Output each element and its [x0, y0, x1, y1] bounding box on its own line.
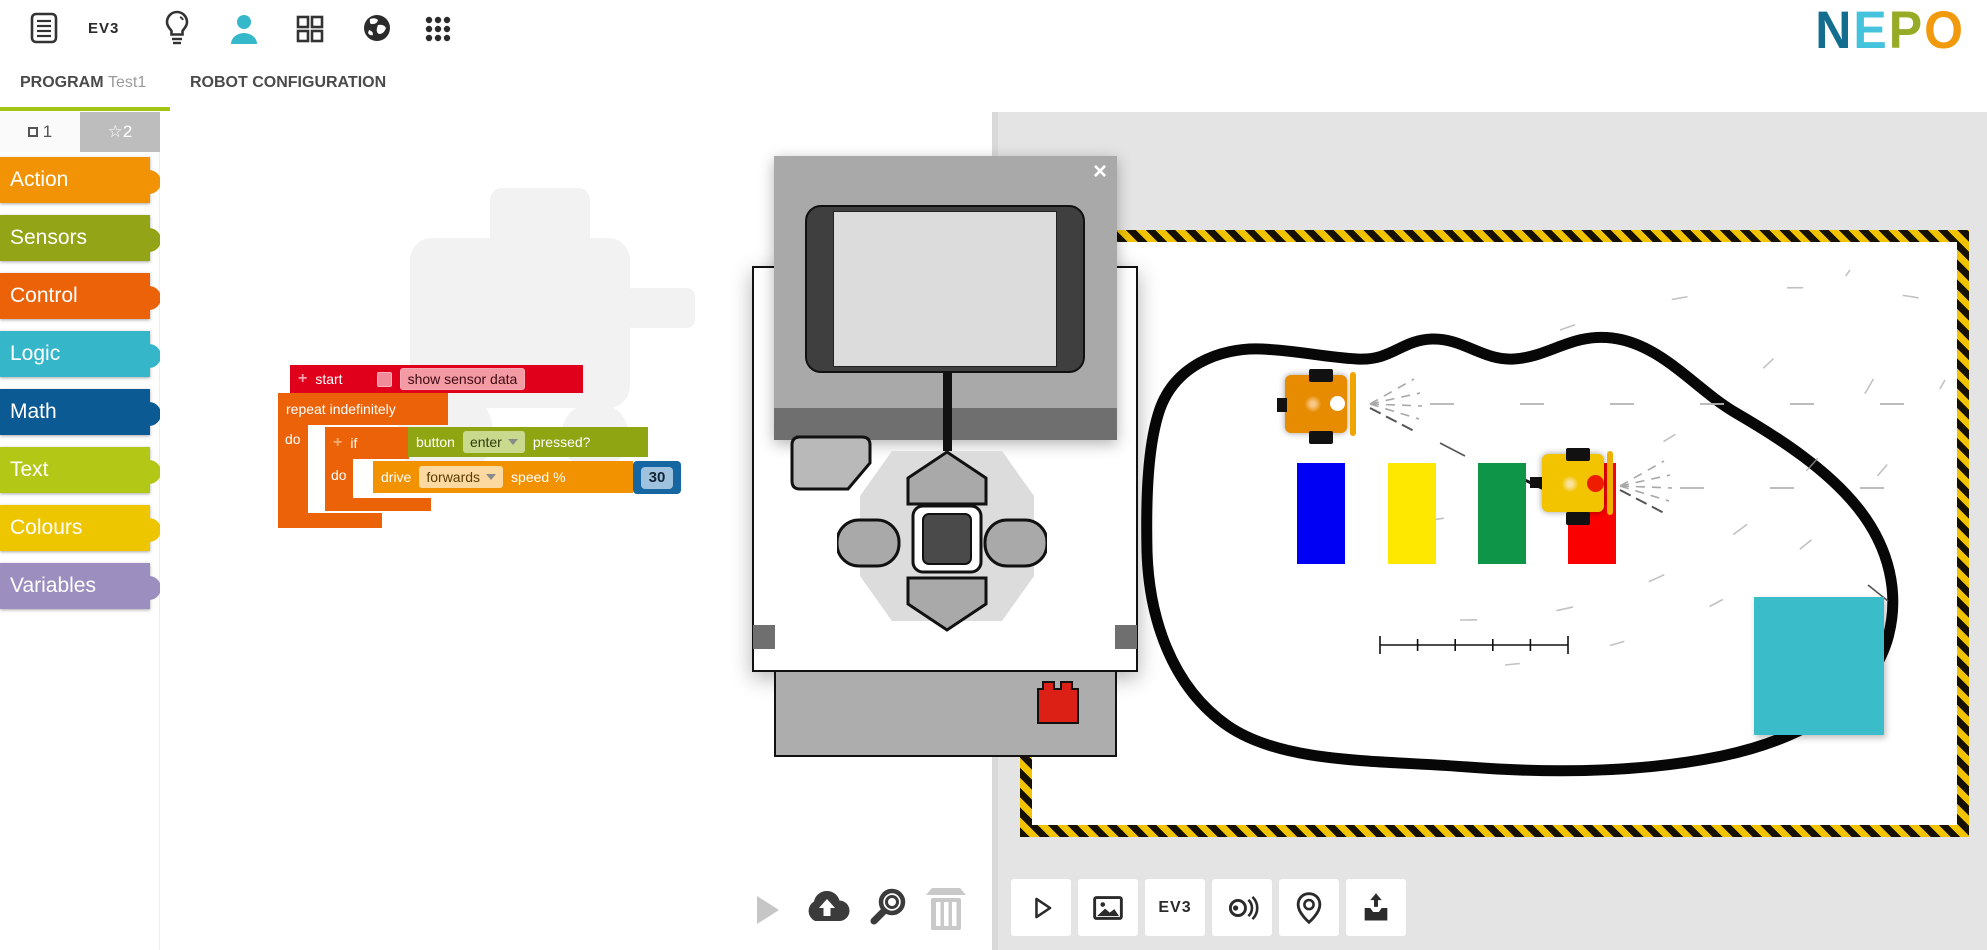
- front-bumper: [1607, 451, 1613, 515]
- block-button-pressed[interactable]: button enter pressed?: [408, 427, 648, 457]
- center-marker: [1562, 476, 1578, 492]
- nepo-logo: NEPO: [1815, 4, 1965, 56]
- sim-background-button[interactable]: [1077, 878, 1139, 937]
- center-marker: [1305, 396, 1321, 412]
- close-icon[interactable]: ×: [1093, 158, 1107, 186]
- top-toolbar: EV3 NEPO: [0, 0, 1987, 58]
- brick-side-tab: [1115, 625, 1137, 649]
- simulation-panel: EV3: [998, 112, 1987, 950]
- category-logic[interactable]: Logic: [0, 331, 150, 377]
- wheel: [1309, 369, 1333, 382]
- category-variables[interactable]: Variables: [0, 563, 150, 609]
- brick-side-tab: [753, 625, 775, 649]
- document-icon[interactable]: [30, 12, 58, 49]
- block-repeat-header[interactable]: repeat indefinitely: [278, 393, 448, 425]
- palette-tab-expert[interactable]: ☆2: [80, 112, 160, 152]
- logo-letter: E: [1853, 3, 1888, 58]
- block-repeat-spine[interactable]: do: [278, 425, 308, 513]
- chevron-down-icon: [508, 439, 518, 445]
- globe-icon[interactable]: [362, 13, 392, 48]
- colour-sensor-red: [1587, 475, 1604, 492]
- category-action[interactable]: Action: [0, 157, 150, 203]
- start-checkbox[interactable]: [377, 372, 392, 387]
- view-tabs: PROGRAM Test1 ROBOT CONFIGURATION: [0, 58, 1987, 112]
- palette-tab-basic[interactable]: 1: [0, 112, 80, 152]
- square-icon: [28, 127, 38, 137]
- sim-import-button[interactable]: [1345, 878, 1407, 937]
- sim-sensor-values-button[interactable]: [1211, 878, 1273, 937]
- active-tab-indicator: [0, 107, 170, 111]
- tab-program[interactable]: PROGRAM Test1: [20, 74, 146, 92]
- lightbulb-icon[interactable]: [162, 9, 192, 52]
- down-button[interactable]: [908, 578, 986, 630]
- category-sensors[interactable]: Sensors: [0, 215, 150, 261]
- category-control[interactable]: Control: [0, 273, 150, 319]
- sim-pose-button[interactable]: [1278, 878, 1340, 937]
- logo-letter: P: [1889, 3, 1924, 58]
- block-if-spine[interactable]: do: [325, 459, 353, 498]
- button-dropdown[interactable]: enter: [463, 431, 525, 453]
- zoom-icon[interactable]: [866, 886, 910, 935]
- program-name: Test1: [108, 74, 146, 91]
- drive-direction-dropdown[interactable]: forwards: [419, 466, 503, 488]
- block-if-header[interactable]: + if: [325, 427, 409, 459]
- wheel: [1566, 448, 1590, 461]
- wheel: [1309, 431, 1333, 444]
- block-start[interactable]: + start show sensor data: [290, 365, 583, 393]
- block-number-30[interactable]: 30: [633, 461, 681, 494]
- block-if-bottom[interactable]: [325, 498, 431, 511]
- robot-watermark: [360, 168, 720, 508]
- ev3-system-label[interactable]: EV3: [88, 20, 119, 37]
- lego-brick-icon: [1037, 688, 1079, 724]
- brick-footer: [774, 672, 1117, 757]
- front-bumper: [1350, 372, 1356, 436]
- run-play-icon[interactable]: [757, 896, 779, 924]
- category-text[interactable]: Text: [0, 447, 150, 493]
- logo-letter: O: [1924, 3, 1965, 58]
- brick-screen-bezel: [805, 205, 1085, 373]
- brick-buttons: [837, 446, 1047, 636]
- block-palette: 1 ☆2 Action Sensors Control Logic Math T…: [0, 112, 160, 950]
- trash-icon[interactable]: [922, 882, 970, 937]
- gallery-grid-icon[interactable]: [296, 15, 324, 48]
- show-sensor-data-chip[interactable]: show sensor data: [400, 368, 526, 390]
- right-button[interactable]: [985, 520, 1047, 566]
- block-drive[interactable]: drive forwards speed %: [373, 461, 633, 493]
- ev3-brick-popup: ×: [752, 156, 1140, 757]
- star-icon: ☆: [108, 122, 123, 141]
- user-icon[interactable]: [228, 13, 260, 50]
- apps-menu-icon[interactable]: [424, 15, 452, 48]
- category-colours[interactable]: Colours: [0, 505, 150, 551]
- tab-robot-configuration[interactable]: ROBOT CONFIGURATION: [190, 74, 386, 92]
- number-value[interactable]: 30: [641, 467, 673, 489]
- enter-button[interactable]: [923, 514, 971, 564]
- logo-letter: N: [1815, 3, 1853, 58]
- scale-ruler: [1380, 636, 1568, 654]
- chevron-down-icon: [486, 474, 496, 480]
- brick-screen: [833, 211, 1057, 367]
- block-repeat-bottom[interactable]: [278, 513, 382, 528]
- category-math[interactable]: Math: [0, 389, 150, 435]
- sim-robot-button[interactable]: EV3: [1144, 878, 1206, 937]
- colour-sensor: [1330, 396, 1345, 411]
- yellow-colour-box[interactable]: [1388, 463, 1436, 564]
- sim-robot-1[interactable]: [1277, 368, 1361, 446]
- sim-robot-2[interactable]: [1532, 446, 1618, 526]
- green-colour-box[interactable]: [1478, 463, 1526, 564]
- sim-play-button[interactable]: [1010, 878, 1072, 937]
- blue-colour-box[interactable]: [1297, 463, 1345, 564]
- teal-obstacle[interactable]: [1754, 597, 1884, 735]
- wheel: [1566, 512, 1590, 525]
- expand-icon[interactable]: +: [333, 434, 342, 452]
- rear-sensor: [1277, 398, 1287, 412]
- cloud-upload-icon[interactable]: [803, 888, 851, 929]
- expand-icon[interactable]: +: [298, 370, 307, 388]
- left-button[interactable]: [837, 520, 899, 566]
